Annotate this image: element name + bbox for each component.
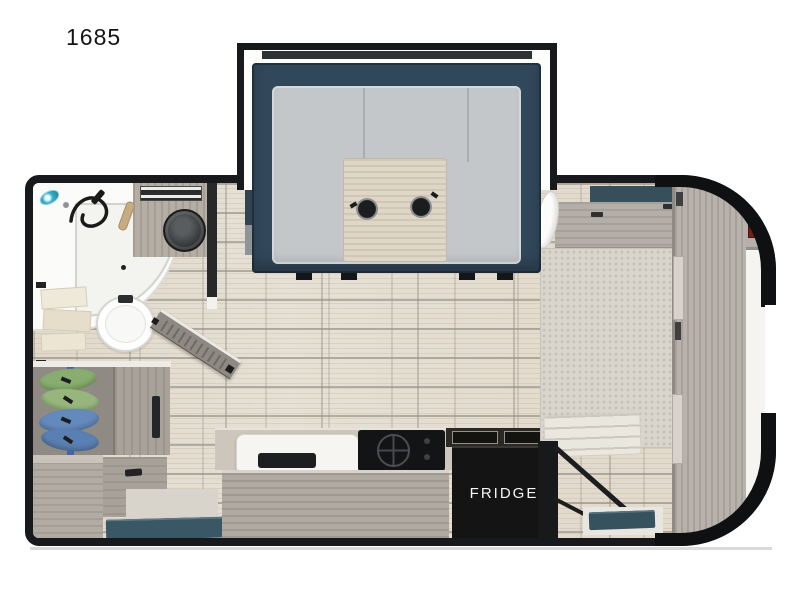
closet-cabinet xyxy=(113,367,170,455)
bathroom-wall-cap xyxy=(207,297,217,309)
slide-end-wall xyxy=(262,51,532,59)
hanger-hook xyxy=(63,435,74,444)
burner-grate-icon xyxy=(377,434,410,467)
cushion-seam xyxy=(363,88,365,162)
shower-drain xyxy=(121,265,126,270)
hanger-hook xyxy=(61,376,72,383)
toilet xyxy=(96,296,155,352)
cabinet-handle xyxy=(125,468,142,476)
shower-knob xyxy=(63,202,69,208)
model-number-label: 1685 xyxy=(66,24,121,51)
entry-step-mat xyxy=(106,516,225,540)
cabinet-handle xyxy=(152,396,160,438)
dresser xyxy=(33,455,103,538)
cup-holder-icon xyxy=(356,198,378,220)
dinette-foot xyxy=(497,273,513,280)
griddle-slot xyxy=(452,431,498,444)
fridge-label: FRIDGE xyxy=(470,485,539,502)
body-drop-shadow xyxy=(30,547,772,550)
sink-cover xyxy=(258,453,316,468)
dinette-table xyxy=(343,158,447,262)
kitchen-sink xyxy=(236,434,359,471)
cooktop xyxy=(358,430,445,471)
front-window-gap xyxy=(765,305,778,413)
kitchen-counter-front xyxy=(222,470,449,538)
bathroom-vanity xyxy=(133,183,209,257)
towel xyxy=(40,286,87,309)
hanging-closet xyxy=(33,367,113,455)
bed-foot-tray xyxy=(589,510,656,530)
cup-holder-icon xyxy=(410,196,432,218)
cushion-seam xyxy=(467,88,469,162)
dinette-foot xyxy=(459,273,475,280)
vanity-shelf xyxy=(140,186,202,201)
u-dinette xyxy=(252,63,541,273)
towel-shelf xyxy=(39,286,95,366)
cooktop-knob xyxy=(424,438,430,444)
hanging-garment-blue xyxy=(40,426,100,454)
cabinet-hinge xyxy=(591,212,603,217)
vanity-sink-bowl xyxy=(163,209,206,252)
wardrobe-hinge xyxy=(675,322,681,340)
floorplan-canvas: 1685 xyxy=(0,0,800,600)
dinette-foot xyxy=(341,273,357,280)
hanger-hook xyxy=(63,395,74,404)
hanger-hook xyxy=(61,416,72,424)
dinette-foot xyxy=(296,273,312,280)
towel xyxy=(42,309,91,332)
cooktop-knob xyxy=(424,454,430,460)
towel xyxy=(41,332,87,352)
bathroom-wall xyxy=(207,183,217,297)
